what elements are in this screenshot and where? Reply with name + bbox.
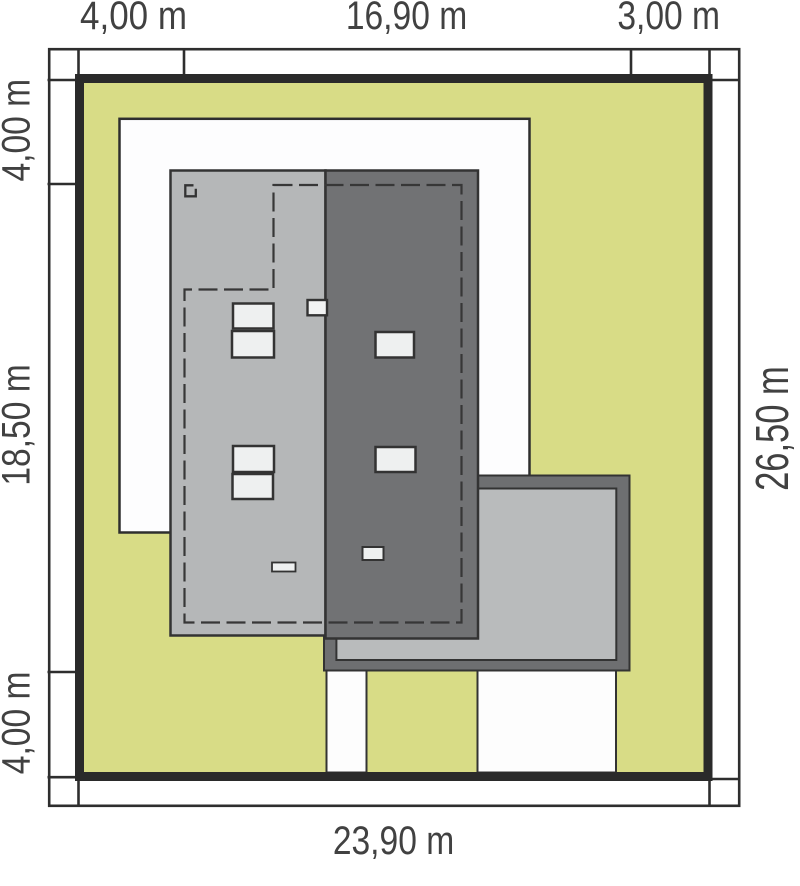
svg-text:4,00 m: 4,00 m [0,79,38,182]
svg-text:26,50 m: 26,50 m [746,366,798,491]
svg-text:18,50 m: 18,50 m [0,364,38,485]
svg-text:3,00 m: 3,00 m [617,0,720,38]
svg-text:4,00 m: 4,00 m [80,0,187,38]
svg-text:4,00 m: 4,00 m [0,672,38,775]
svg-text:16,90 m: 16,90 m [346,0,467,38]
svg-text:23,90 m: 23,90 m [333,818,454,862]
